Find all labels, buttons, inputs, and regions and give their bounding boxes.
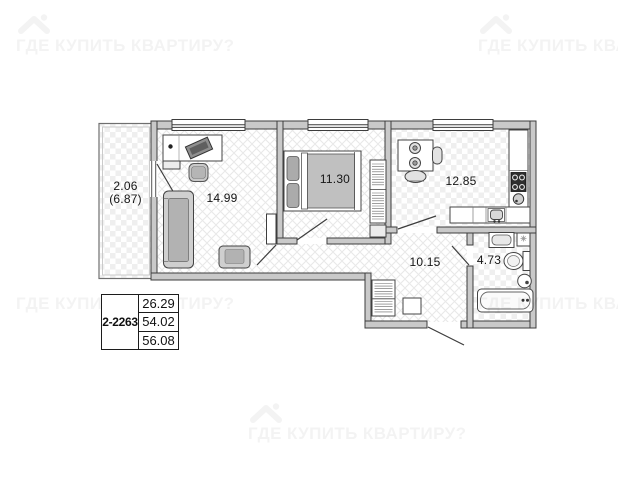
watermark-text: ГДЕ КУПИТЬ КВАРТИРУ? [478, 295, 618, 312]
watermark-house-icon [479, 12, 513, 35]
floorplan-drawing [0, 0, 618, 480]
area-value-row: 26.29 [139, 295, 178, 313]
kitchen-round-sink-icon [513, 194, 523, 204]
room-label-kitchen: 12.85 [431, 175, 491, 188]
room-label-bedroom: 11.30 [305, 173, 365, 186]
kitchen-sink-icon [491, 210, 503, 220]
balcony-area-alt: (6.87) [98, 193, 153, 206]
washing-machine [518, 274, 532, 288]
kitchen-counter-bottom [450, 207, 530, 223]
windows [172, 120, 493, 131]
kitchen-counter-right [509, 130, 528, 208]
watermark-text: ГДЕ КУПИТЬ КВАРТИРУ? [16, 37, 234, 54]
desk-lamp-icon [168, 144, 172, 148]
desk-chair [189, 164, 208, 182]
washbasin [489, 233, 514, 248]
bathroom-corner-unit [517, 233, 530, 246]
watermark-text: ГДЕ КУПИТЬ КВАРТИРУ? [248, 425, 466, 442]
room-label-bathroom: 4.73 [459, 254, 519, 267]
area-value-row: 56.08 [139, 332, 178, 349]
room-label-living: 14.99 [192, 192, 252, 205]
sofa [164, 191, 194, 268]
unit-id: 2-2263 [102, 295, 139, 349]
room-label-hallway: 10.15 [395, 256, 455, 269]
watermark-text: ГДЕ КУПИТЬ КВАРТИРУ? [478, 37, 618, 54]
watermark-house-icon [249, 401, 283, 424]
watermark-house-icon [17, 12, 51, 35]
room-label-balcony: 2.06 (6.87) [98, 180, 153, 206]
hallway-wardrobe [372, 280, 395, 316]
armchair [219, 246, 250, 268]
hallway-cabinet [403, 298, 421, 314]
area-value-row: 54.02 [139, 313, 178, 331]
floorplan-page: 2.06 (6.87) 14.99 11.30 12.85 10.15 4.73… [0, 0, 618, 480]
bedroom-wardrobe [370, 160, 386, 237]
unit-info-table: 2-2263 26.29 54.02 56.08 [101, 294, 179, 350]
